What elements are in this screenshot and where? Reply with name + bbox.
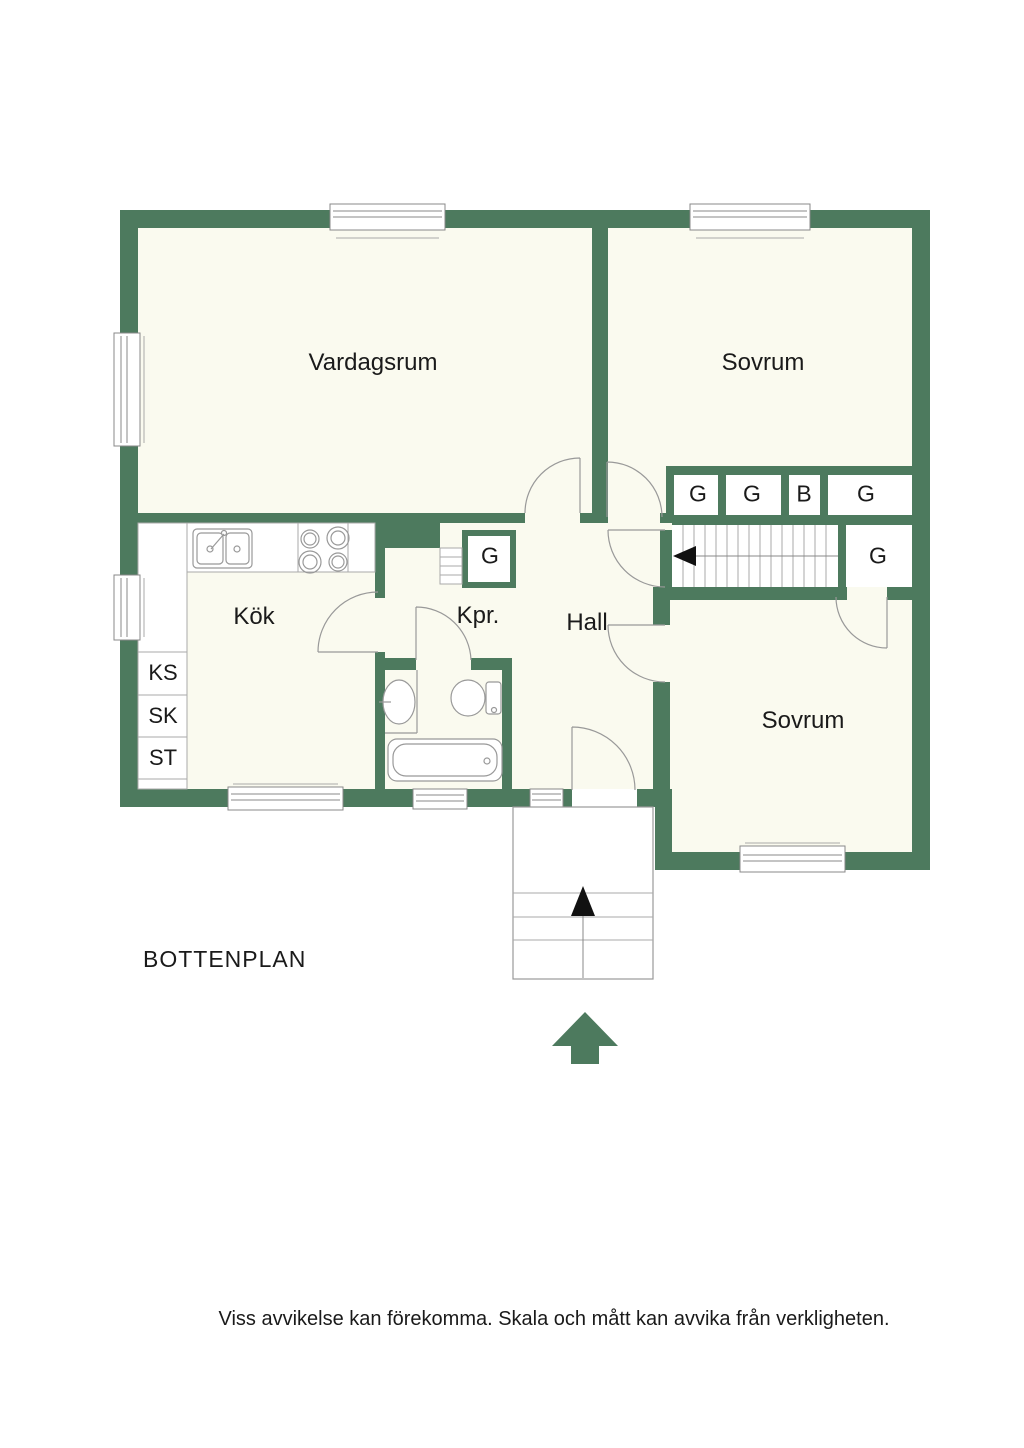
- floorplan-page: Vardagsrum Sovrum Kök Kpr. Hall Sovrum G…: [0, 0, 1024, 1448]
- wardrobe-label-g-stair: G: [869, 543, 887, 570]
- wardrobe-label-g-kpr: G: [481, 543, 499, 570]
- room-label-kitchen: Kök: [233, 603, 274, 631]
- appliance-label-ks: KS: [148, 660, 177, 686]
- wardrobe-label-b: B: [796, 481, 811, 508]
- kpr-shelves: [440, 548, 462, 584]
- room-label-bedroom-bottom: Sovrum: [762, 707, 845, 735]
- wardrobe-label-g1: G: [689, 481, 707, 508]
- room-label-bedroom-top: Sovrum: [722, 349, 805, 377]
- room-label-hall: Hall: [566, 609, 607, 637]
- room-label-living-room: Vardagsrum: [309, 349, 438, 377]
- wardrobe-label-g3: G: [857, 481, 875, 508]
- wardrobe-label-g2: G: [743, 481, 761, 508]
- entrance-steps: [513, 807, 653, 979]
- appliance-label-sk: SK: [148, 703, 177, 729]
- plan-title: BOTTENPLAN: [143, 946, 306, 973]
- entrance-arrow-icon: [552, 1012, 618, 1064]
- appliance-label-st: ST: [149, 745, 177, 771]
- disclaimer-text: Viss avvikelse kan förekomma. Skala och …: [218, 1308, 889, 1331]
- room-label-closet-room: Kpr.: [457, 602, 500, 630]
